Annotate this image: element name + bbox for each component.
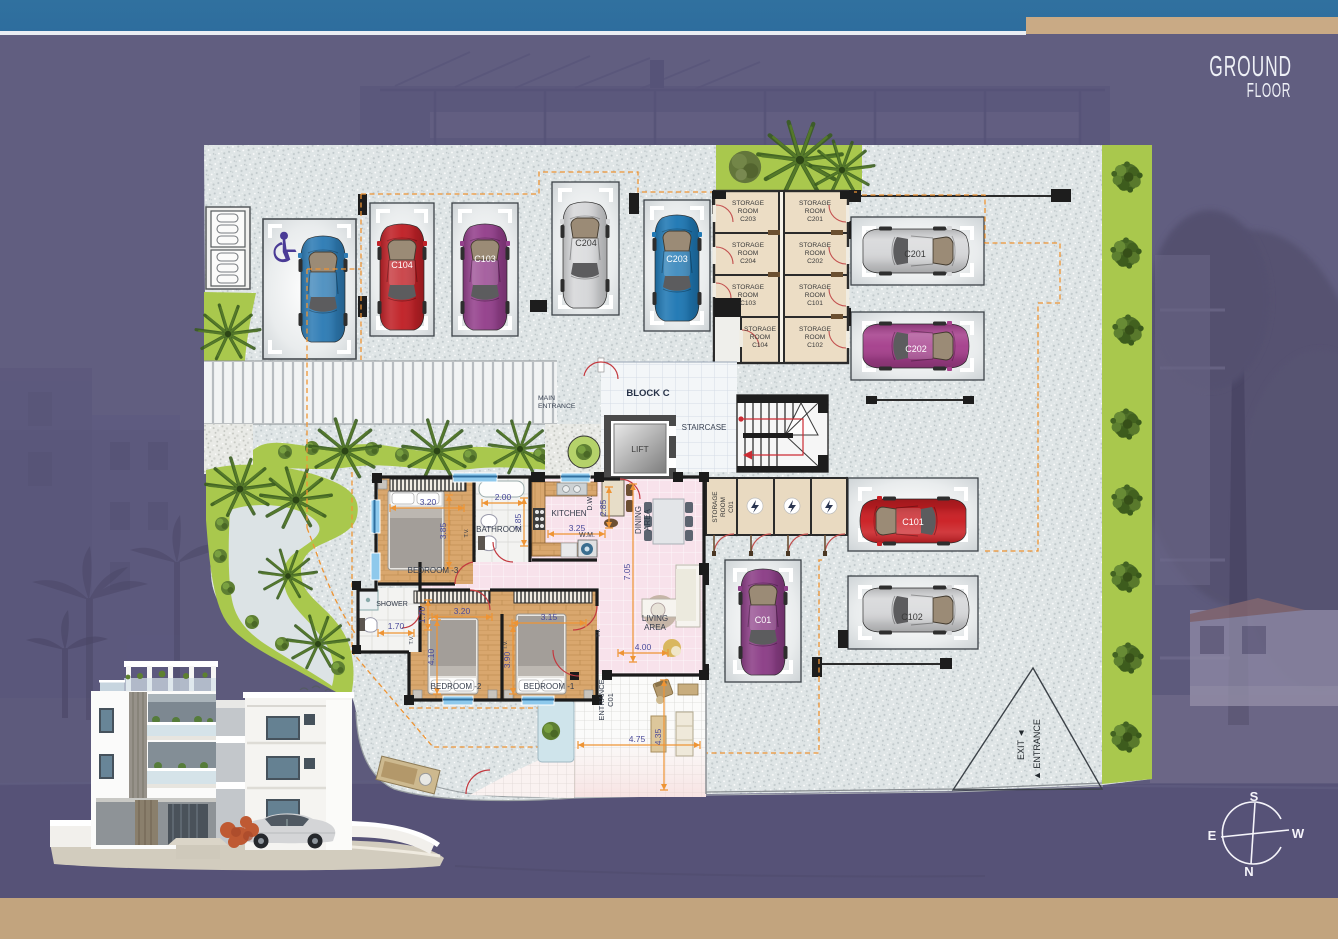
- svg-text:4.00: 4.00: [635, 642, 652, 652]
- svg-text:EXIT ◄: EXIT ◄: [1016, 729, 1026, 760]
- svg-text:C01: C01: [606, 693, 615, 707]
- svg-text:3.15: 3.15: [541, 612, 558, 622]
- svg-text:BEDROOM -2: BEDROOM -2: [431, 682, 482, 691]
- svg-text:C101: C101: [807, 300, 823, 307]
- svg-text:ROOM: ROOM: [738, 250, 759, 257]
- svg-text:3.85: 3.85: [438, 522, 448, 539]
- svg-text:STORAGE: STORAGE: [712, 491, 719, 522]
- svg-text:STORAGE: STORAGE: [732, 284, 765, 291]
- svg-text:C104: C104: [391, 260, 413, 270]
- svg-text:STAIRCASE: STAIRCASE: [682, 423, 727, 432]
- svg-text:W.M.: W.M.: [579, 532, 595, 539]
- svg-text:C202: C202: [905, 344, 927, 354]
- svg-text:ENTRANCE: ENTRANCE: [538, 403, 576, 410]
- svg-text:3.20: 3.20: [454, 606, 471, 616]
- svg-text:ROOM: ROOM: [805, 334, 826, 341]
- svg-text:BLOCK C: BLOCK C: [626, 388, 669, 399]
- svg-text:BEDROOM -3: BEDROOM -3: [408, 566, 459, 575]
- svg-text:GROUND: GROUND: [1209, 51, 1292, 84]
- svg-text:BEDROOM -1: BEDROOM -1: [524, 682, 575, 691]
- svg-text:STORAGE: STORAGE: [799, 242, 832, 249]
- svg-text:C204: C204: [740, 258, 756, 265]
- svg-text:ROOM: ROOM: [738, 292, 759, 299]
- svg-text:ROOM: ROOM: [738, 208, 759, 215]
- svg-text:LIVING: LIVING: [642, 614, 668, 623]
- svg-text:W: W: [1292, 826, 1305, 841]
- svg-text:STORAGE: STORAGE: [799, 200, 832, 207]
- svg-text:▲ ENTRANCE: ▲ ENTRANCE: [1032, 719, 1042, 780]
- svg-text:DINING: DINING: [634, 506, 643, 534]
- svg-text:D.W.: D.W.: [587, 495, 594, 510]
- svg-text:S: S: [1250, 789, 1259, 804]
- svg-text:3.90: 3.90: [502, 651, 512, 668]
- svg-text:C103: C103: [474, 254, 496, 264]
- svg-text:C104: C104: [752, 342, 768, 349]
- svg-text:C202: C202: [807, 258, 823, 265]
- svg-text:4.10: 4.10: [426, 648, 436, 665]
- svg-text:C103: C103: [740, 300, 756, 307]
- svg-text:C204: C204: [575, 238, 597, 248]
- svg-text:ROOM: ROOM: [805, 292, 826, 299]
- svg-text:4.35: 4.35: [653, 728, 663, 745]
- svg-text:STORAGE: STORAGE: [744, 326, 777, 333]
- svg-text:C01: C01: [755, 615, 772, 625]
- svg-text:4.75: 4.75: [629, 734, 646, 744]
- svg-text:N: N: [1244, 864, 1253, 879]
- svg-text:T.V.: T.V.: [409, 635, 415, 644]
- svg-text:2.00: 2.00: [495, 492, 512, 502]
- svg-text:LIFT: LIFT: [631, 444, 648, 454]
- svg-text:C203: C203: [666, 254, 688, 264]
- svg-text:C201: C201: [904, 249, 926, 259]
- svg-text:C102: C102: [807, 342, 823, 349]
- svg-text:SHOWER: SHOWER: [376, 601, 408, 608]
- svg-text:STORAGE: STORAGE: [799, 284, 832, 291]
- svg-text:3.20: 3.20: [420, 497, 437, 507]
- svg-text:STORAGE: STORAGE: [799, 326, 832, 333]
- svg-text:C01: C01: [728, 501, 735, 513]
- svg-text:2.85: 2.85: [598, 499, 608, 516]
- svg-text:AREA: AREA: [644, 623, 666, 632]
- svg-text:T.V.: T.V.: [464, 528, 470, 537]
- svg-text:AREA: AREA: [643, 508, 652, 530]
- svg-text:1.70: 1.70: [417, 606, 427, 623]
- svg-text:ROOM: ROOM: [750, 334, 771, 341]
- svg-text:KITCHEN: KITCHEN: [551, 509, 586, 518]
- svg-text:ROOM: ROOM: [720, 497, 727, 517]
- svg-text:STORAGE: STORAGE: [732, 242, 765, 249]
- svg-text:E: E: [1208, 828, 1217, 843]
- svg-text:T.V.: T.V.: [503, 640, 509, 649]
- svg-text:BATHROOM: BATHROOM: [476, 525, 522, 534]
- svg-text:C201: C201: [807, 216, 823, 223]
- svg-text:MAIN: MAIN: [538, 395, 555, 402]
- svg-text:C101: C101: [902, 517, 924, 527]
- svg-text:ROOM: ROOM: [805, 250, 826, 257]
- svg-text:7.05: 7.05: [622, 563, 632, 580]
- svg-text:C102: C102: [901, 612, 923, 622]
- svg-text:FLOOR: FLOOR: [1247, 80, 1291, 102]
- svg-text:ROOM: ROOM: [805, 208, 826, 215]
- svg-text:STORAGE: STORAGE: [732, 200, 765, 207]
- svg-text:T.V.: T.V.: [596, 628, 602, 637]
- svg-text:1.70: 1.70: [388, 621, 405, 631]
- svg-text:ENTRANCE: ENTRANCE: [597, 679, 606, 720]
- svg-text:C203: C203: [740, 216, 756, 223]
